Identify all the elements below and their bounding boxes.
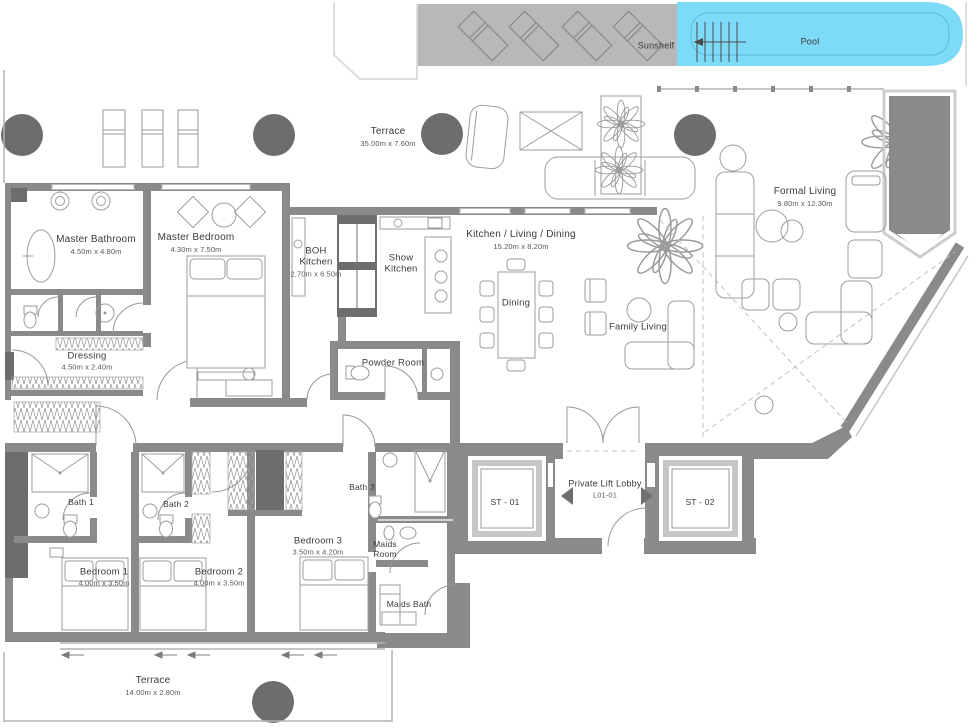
slide-direction-arrows — [62, 652, 337, 658]
structural-columns — [1, 113, 716, 723]
floor-plan-canvas: SunshelfPoolTerrace35.00m x 7.60mMaster … — [0, 0, 977, 728]
pool-water — [677, 2, 963, 66]
column — [252, 681, 294, 723]
column — [421, 113, 463, 155]
column — [674, 114, 716, 156]
deck-edge-outline — [334, 2, 417, 79]
lobby-arrow-left-icon — [561, 487, 573, 505]
column — [1, 114, 43, 156]
column — [253, 114, 295, 156]
terrace-loungers — [103, 110, 198, 167]
terrace-lounge-set — [465, 96, 695, 199]
pool-deck — [334, 2, 966, 86]
floorplan-linework — [0, 0, 977, 728]
bottom-terrace — [4, 643, 392, 722]
lift-cars — [467, 455, 743, 542]
